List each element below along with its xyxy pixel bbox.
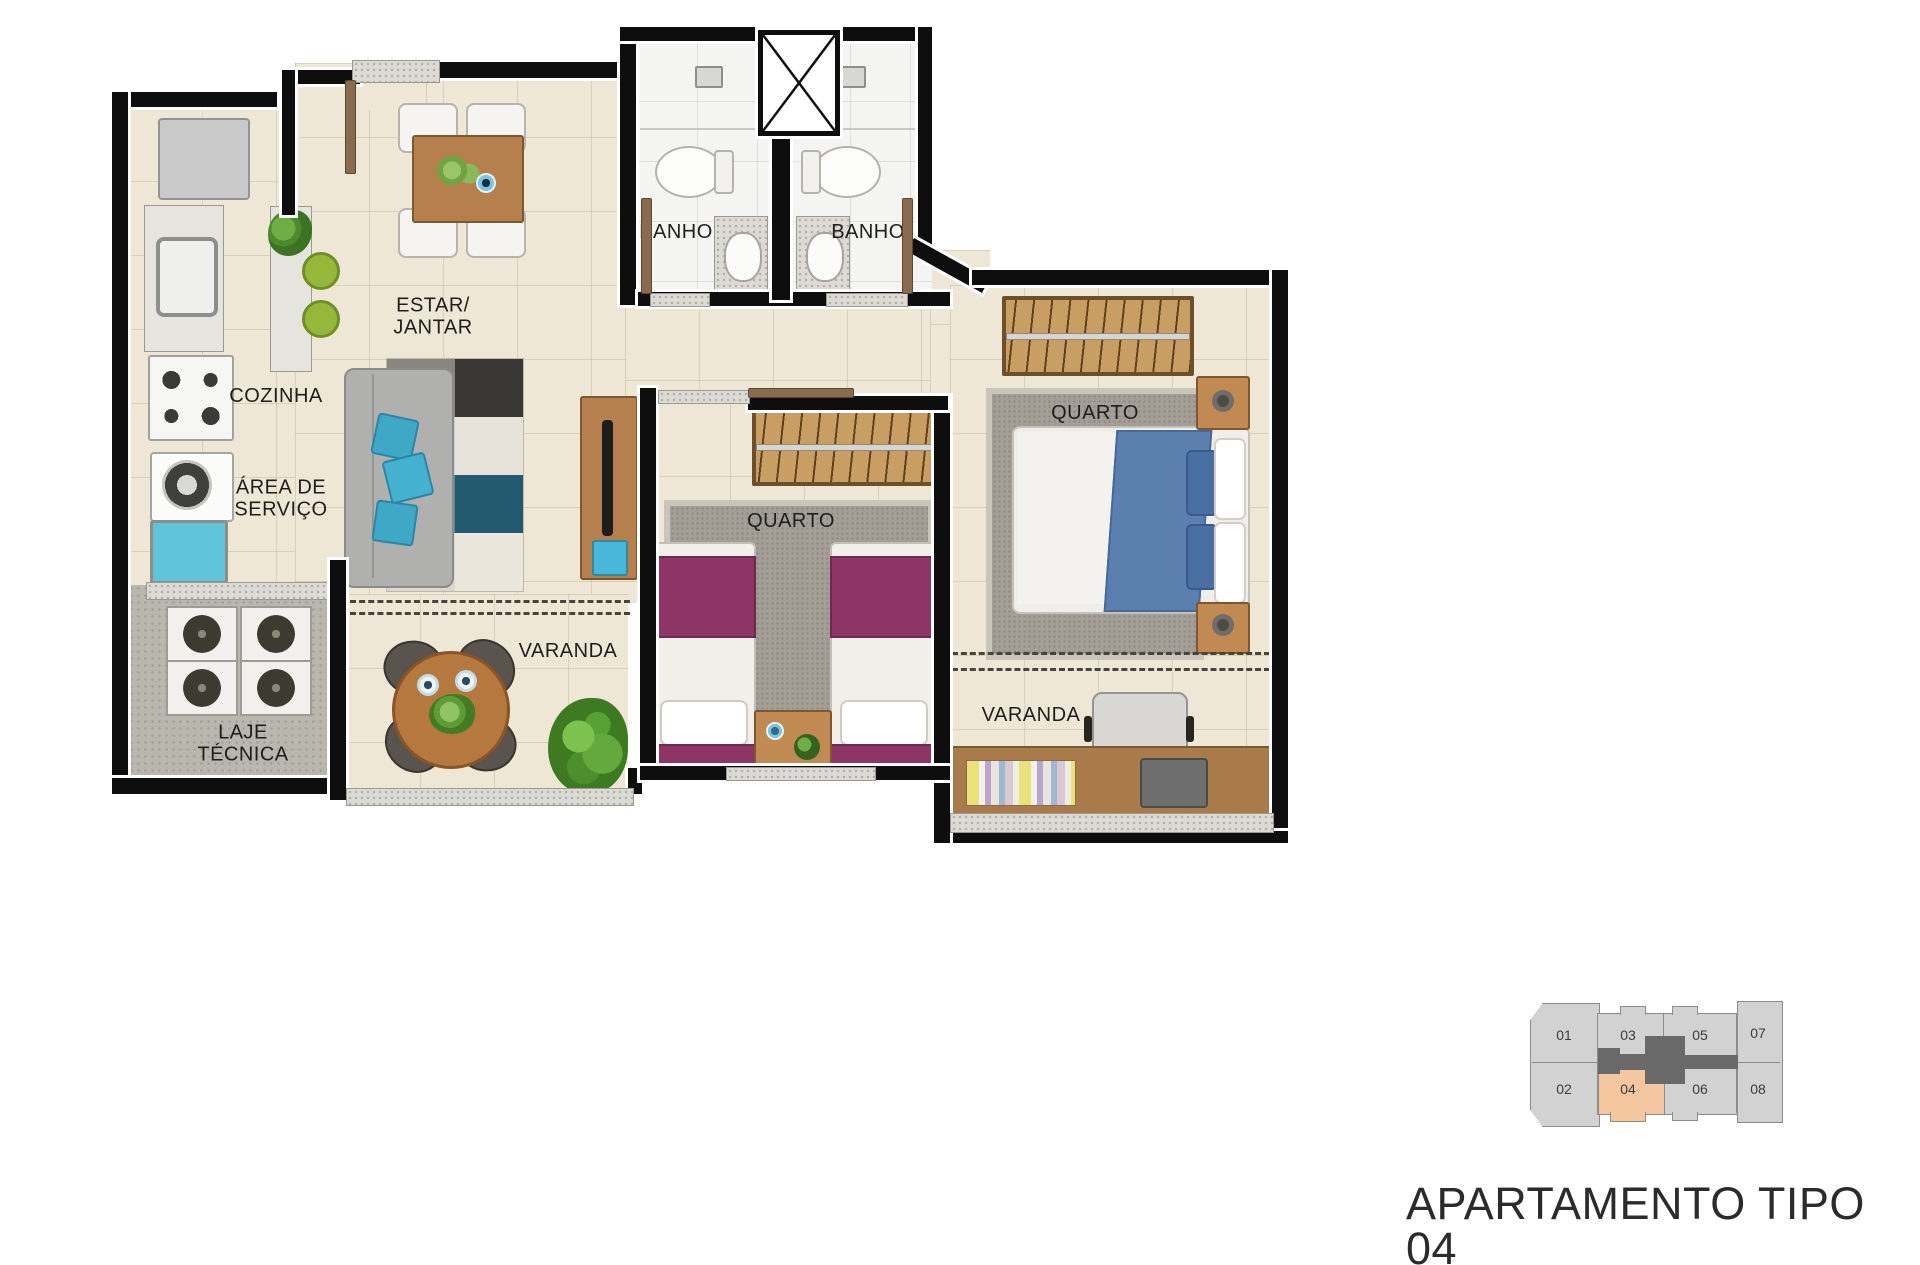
shower-head-2 (838, 66, 866, 88)
entry-door-leaf (345, 80, 356, 174)
room-label-area-servico: ÁREA DESERVIÇO (234, 477, 327, 522)
wall-segment (112, 92, 292, 107)
bathroom-2-threshold (826, 293, 908, 307)
keyplan-unit-07: 07 (1750, 1025, 1766, 1041)
varanda-round-table (392, 651, 510, 769)
bed-blanket-magenta (830, 556, 936, 638)
toilet-1 (655, 146, 723, 198)
bar-stool-1 (302, 252, 340, 290)
rug-tile (455, 417, 523, 475)
wall-segment (436, 62, 628, 78)
table-plant (432, 155, 482, 189)
bed-pillow (840, 700, 928, 746)
keyplan-left-wing (1530, 1003, 1600, 1127)
left-varanda-sill (346, 788, 634, 806)
nightstand-right-2 (1196, 602, 1250, 654)
dining-table (412, 135, 524, 223)
room-label-banho-2: BANHO (831, 221, 905, 243)
varanda-plate-2 (455, 670, 477, 692)
keyplan-unit-02: 02 (1556, 1081, 1572, 1097)
wall-segment (112, 92, 128, 792)
wardrobe-middle-bedroom (752, 408, 938, 486)
varanda-plant (548, 698, 628, 794)
twin-bed-1 (650, 542, 756, 772)
sofa-back-line (372, 374, 374, 578)
room-label-laje-tecnica: LAJETÉCNICA (197, 722, 288, 767)
wall-segment (640, 388, 656, 780)
keyplan: 01 03 05 07 02 04 06 08 (1520, 995, 1790, 1135)
wall-segment (620, 27, 636, 305)
chair-arm-left (1084, 716, 1092, 742)
keyplan-unit-03: 03 (1620, 1027, 1636, 1043)
ac-condenser-4 (240, 660, 312, 716)
keyplan-core (1683, 1055, 1738, 1069)
wall-segment (330, 560, 346, 800)
room-label-varanda-right: VARANDA (982, 704, 1081, 726)
wall-segment (918, 27, 932, 245)
room-label-estar-jantar: ESTAR/JANTAR (393, 295, 472, 340)
ac-condenser-1 (166, 606, 238, 662)
ac-condenser-3 (166, 660, 238, 716)
wall-segment (1272, 270, 1288, 845)
room-label-quarto-right: QUARTO (1051, 402, 1139, 424)
bathroom-1-threshold (650, 293, 710, 307)
varanda-table-plant (429, 694, 475, 734)
bed-blanket-magenta (650, 556, 756, 638)
middle-bedroom-threshold (658, 390, 750, 404)
varanda-plate-1 (417, 674, 439, 696)
stove (148, 355, 234, 441)
tv-screen (602, 420, 613, 536)
washing-machine (150, 452, 234, 522)
page-title: APARTAMENTO TIPO 04 (1406, 1181, 1906, 1265)
bar-stool-2 (302, 300, 340, 338)
sliding-door-bedroom-varanda (952, 652, 1270, 655)
desk (950, 746, 1276, 818)
shaft (758, 30, 840, 136)
sofa (344, 368, 454, 588)
right-varanda-sill (950, 813, 1274, 833)
nightstand-right-1 (1196, 376, 1250, 430)
wall-segment (772, 120, 790, 300)
sink-basin-1 (724, 232, 762, 282)
room-label-cozinha: COZINHA (229, 385, 323, 407)
ac-fan-icon (183, 669, 221, 707)
keyplan-notch-top-2 (1672, 1006, 1698, 1015)
bed-pillow-white-2 (1214, 522, 1246, 604)
wall-segment (112, 778, 334, 794)
bathroom-2-door-leaf (902, 198, 913, 294)
wall-segment (282, 70, 295, 215)
sofa-pillow-3 (371, 499, 418, 546)
sliding-door-living-varanda-2 (350, 612, 630, 615)
keyplan-unit-05: 05 (1692, 1027, 1708, 1043)
floor-hallway (625, 306, 950, 398)
bed-pillow-white-1 (1214, 438, 1246, 520)
keyplan-notch-bottom-2 (1672, 1112, 1698, 1121)
middle-bedroom-window-sill (726, 767, 876, 781)
laundry-tub (150, 520, 228, 584)
wardrobe-rail (756, 444, 934, 451)
middle-bedroom-door-leaf (748, 388, 854, 398)
twin-bed-2 (830, 542, 936, 772)
rug-tile (455, 475, 523, 533)
table-dish (476, 173, 496, 193)
room-label-quarto-middle: QUARTO (747, 510, 835, 532)
toilet-tank-1 (714, 150, 734, 194)
ac-fan-icon (183, 615, 221, 653)
washer-drum (162, 460, 212, 510)
bathroom-1-door-leaf (641, 198, 652, 294)
keyplan-core (1598, 1048, 1620, 1074)
keyplan-core (1645, 1036, 1685, 1084)
floor-plan-page: COZINHA ÁREA DESERVIÇO LAJETÉCNICA ESTAR… (0, 0, 1920, 1265)
wall-segment (748, 396, 948, 410)
fridge (158, 118, 250, 200)
nightstand-lamp (1212, 390, 1234, 412)
shower-head-1 (695, 66, 723, 88)
tv-panel (580, 396, 638, 580)
keyplan-unit-01: 01 (1556, 1027, 1572, 1043)
double-bed (1012, 426, 1250, 614)
sliding-door-bedroom-varanda-2 (952, 668, 1270, 671)
bed-pillow (660, 700, 748, 746)
desk-books (966, 760, 1076, 806)
nightstand-plant (794, 734, 820, 760)
rug-tile (455, 533, 523, 591)
keyplan-notch-top-1 (1620, 1006, 1646, 1015)
rug-tile (455, 359, 523, 417)
wardrobe-rail (1006, 333, 1190, 340)
desk-laptop (1140, 758, 1208, 808)
kitchen-sink (156, 237, 218, 317)
toilet-tank-2 (801, 150, 821, 194)
laje-sill (146, 582, 334, 600)
keyplan-unit-08: 08 (1750, 1081, 1766, 1097)
tv-cabinet (592, 540, 628, 576)
keyplan-core (1618, 1054, 1648, 1070)
entry-threshold (352, 60, 440, 83)
toilet-2 (813, 146, 881, 198)
wall-segment (972, 270, 1288, 285)
chair-arm-right (1186, 716, 1194, 742)
nightstand-dish (766, 722, 784, 740)
ac-condenser-2 (240, 606, 312, 662)
keyplan-unit-04-highlight-bump (1610, 1112, 1646, 1122)
keyplan-unit-04: 04 (1620, 1081, 1636, 1097)
wardrobe-right-bedroom (1002, 296, 1194, 376)
sliding-door-living-varanda (350, 600, 630, 603)
ac-fan-icon (257, 615, 295, 653)
keyplan-unit-06: 06 (1692, 1081, 1708, 1097)
sofa-pillow-2 (381, 451, 434, 504)
nightstand-lamp (1212, 614, 1234, 636)
ac-fan-icon (257, 669, 295, 707)
shower-line-1 (640, 128, 770, 130)
room-label-varanda-left: VARANDA (519, 640, 618, 662)
nightstand-between-beds (754, 710, 832, 772)
shaft-x-icon (763, 35, 835, 131)
